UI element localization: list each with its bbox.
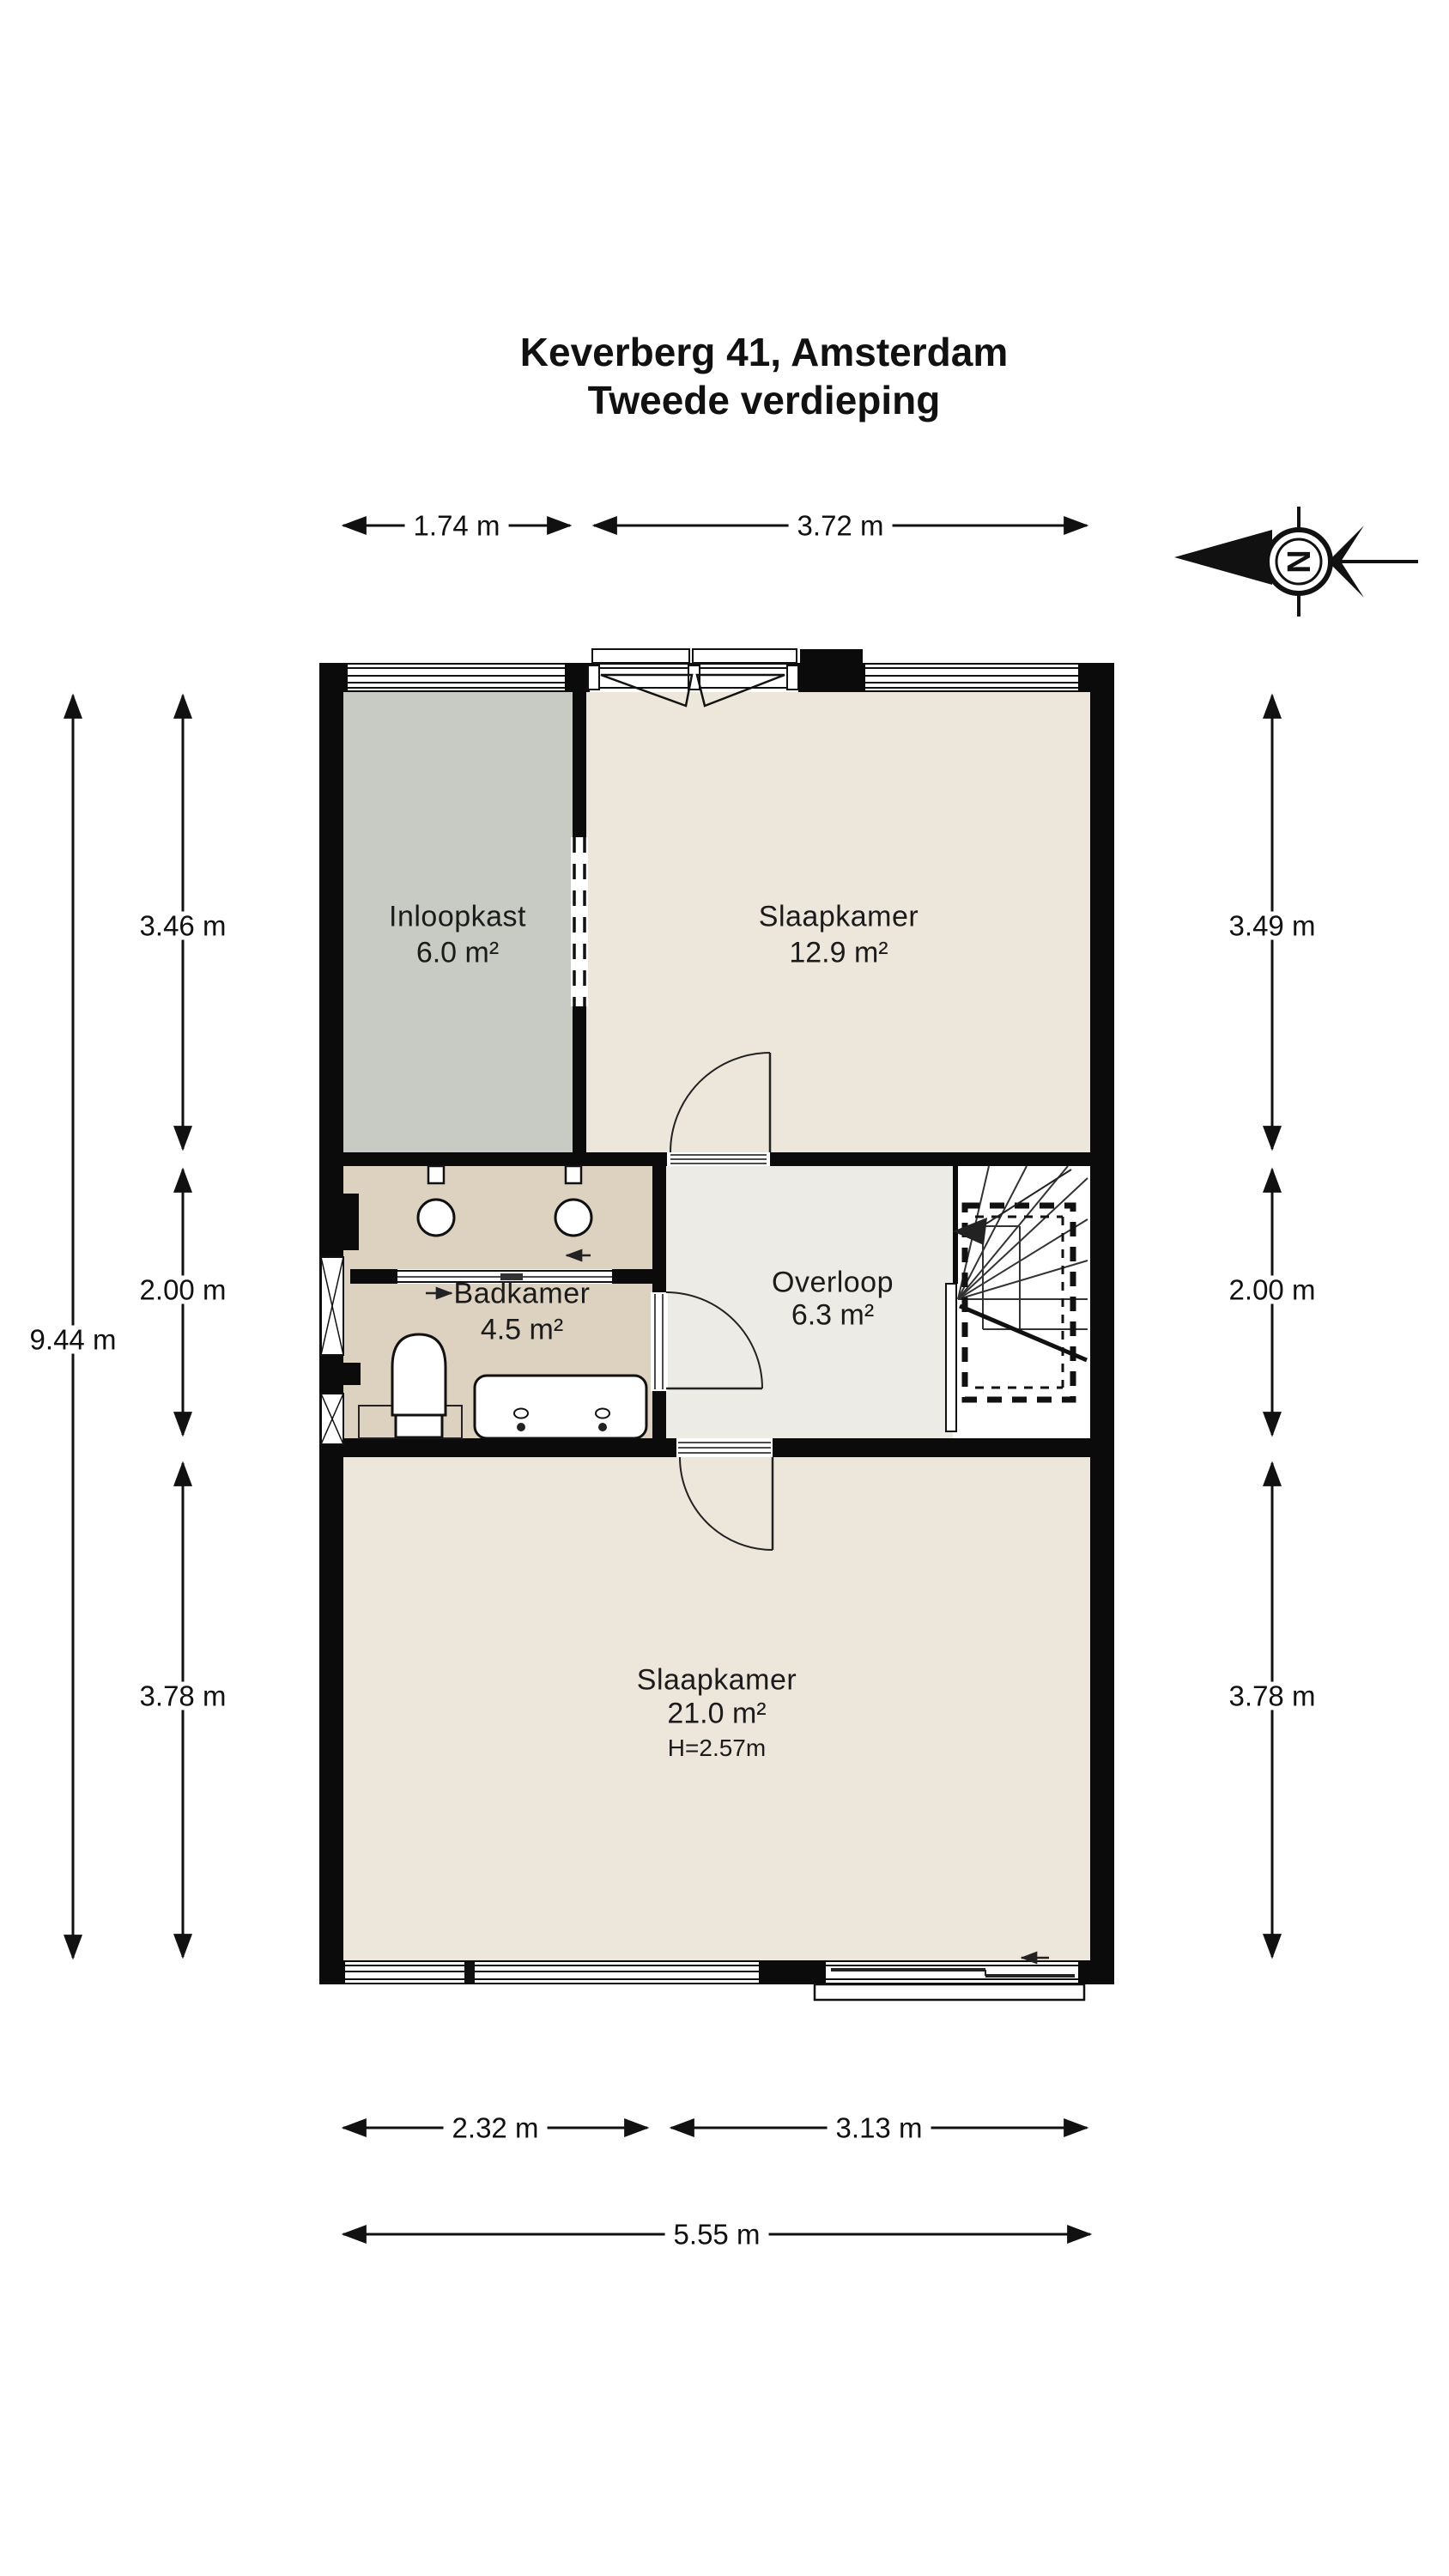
window-sill-outside [815, 1984, 1084, 2000]
room-label-overloop: Overloop [772, 1267, 894, 1300]
compass-letter: N [1282, 550, 1318, 573]
dim-right-2: 2.00 m [1221, 1276, 1325, 1304]
closet-opening [571, 837, 588, 1006]
room-area-slaapkamer-top: 12.9 m² [789, 937, 888, 970]
room-floors [343, 692, 1090, 1960]
dim-top-left: 1.74 m [405, 512, 509, 540]
room-area-inloopkast: 6.0 m² [416, 937, 499, 970]
sliding-window-bottom-right [815, 1962, 1084, 2000]
dim-left-2: 2.00 m [131, 1276, 235, 1304]
compass-north-icon: N [1174, 507, 1418, 617]
bathtub [475, 1376, 646, 1438]
window-left-bathroom-1 [321, 1257, 343, 1355]
window-bottom-left [345, 1962, 759, 1983]
dim-bottom-total: 5.55 m [665, 2221, 769, 2249]
wall-stub-left [343, 1194, 359, 1250]
wall-pier-top [800, 649, 863, 692]
dim-left-total: 9.44 m [21, 1326, 125, 1354]
dim-left-1: 3.46 m [131, 912, 235, 940]
faucet-icon [514, 1409, 528, 1419]
faucet-icon [596, 1409, 609, 1419]
dim-left-3: 3.78 m [131, 1682, 235, 1710]
room-label-badkamer: Badkamer [454, 1278, 591, 1311]
toilet [392, 1334, 446, 1437]
floorplan-page: N Keverberg 41, Amsterdam Tweede verdiep… [0, 0, 1449, 2576]
room-label-inloopkast: Inloopkast [389, 901, 526, 934]
room-label-slaapkamer-bottom: Slaapkamer [637, 1664, 797, 1698]
wall-stair-enclosure [953, 1166, 958, 1284]
room-area-badkamer: 4.5 m² [481, 1314, 563, 1347]
dim-right-3: 3.78 m [1221, 1682, 1325, 1710]
dim-bottom-left: 2.32 m [444, 2114, 548, 2142]
plan-subtitle: Tweede verdieping [588, 377, 941, 423]
dim-bottom-right: 3.13 m [828, 2114, 931, 2142]
room-height-slaapkamer-bottom: H=2.57m [668, 1735, 766, 1762]
wall-stub-toilet [343, 1363, 361, 1385]
room-area-slaapkamer-bottom: 21.0 m² [667, 1698, 766, 1731]
dim-top-right: 3.72 m [789, 512, 893, 540]
window-mullion [464, 1962, 475, 1983]
window-left-bathroom-2 [321, 1394, 343, 1444]
window-top-closet [348, 665, 565, 690]
plan-title: Keverberg 41, Amsterdam [520, 329, 1008, 375]
stair-opening-jamb [946, 1284, 956, 1431]
room-label-slaapkamer-top: Slaapkamer [759, 901, 919, 934]
room-area-overloop: 6.3 m² [791, 1299, 874, 1333]
dim-right-1: 3.49 m [1221, 912, 1325, 940]
window-top-bedroom [865, 665, 1078, 690]
